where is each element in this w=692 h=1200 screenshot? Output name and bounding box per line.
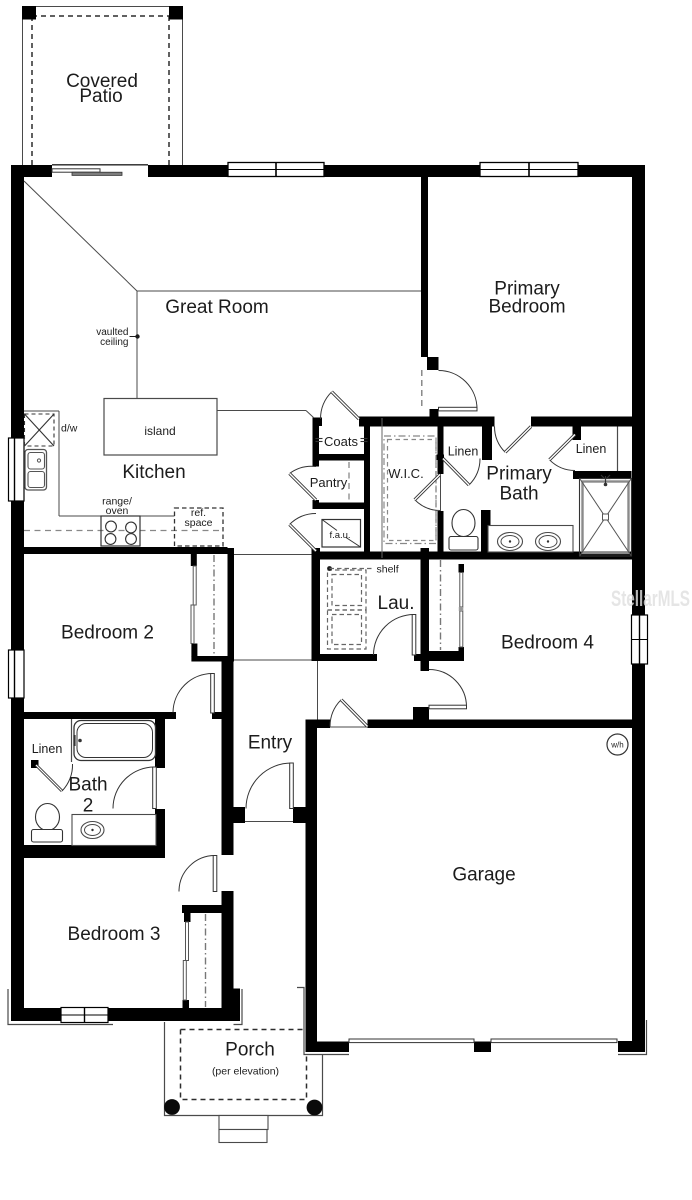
svg-text:Garage: Garage [452, 865, 515, 886]
svg-text:StellarMLS: StellarMLS [611, 586, 690, 611]
svg-text:Porch: Porch [225, 1040, 275, 1061]
svg-text:W.I.C.: W.I.C. [388, 466, 423, 481]
svg-text:Great Room: Great Room [165, 297, 268, 318]
svg-text:Bedroom 4: Bedroom 4 [501, 633, 594, 654]
svg-text:Linen: Linen [448, 445, 479, 459]
svg-text:Bedroom 3: Bedroom 3 [68, 924, 161, 945]
svg-text:(per elevation): (per elevation) [212, 1066, 279, 1078]
svg-text:Bedroom: Bedroom [488, 297, 565, 318]
svg-text:Entry: Entry [248, 733, 293, 754]
svg-text:island: island [144, 424, 175, 438]
svg-text:oven: oven [106, 505, 129, 517]
svg-text:Lau.: Lau. [378, 593, 415, 614]
svg-text:space: space [184, 517, 212, 529]
svg-text:Bedroom 2: Bedroom 2 [61, 623, 154, 644]
svg-text:Linen: Linen [576, 442, 607, 456]
svg-text:f.a.u.: f.a.u. [329, 530, 350, 541]
svg-text:Bath: Bath [68, 775, 107, 796]
svg-text:Patio: Patio [79, 86, 122, 107]
svg-text:w/h: w/h [610, 741, 623, 750]
svg-text:Coats: Coats [324, 434, 358, 449]
svg-text:ceiling: ceiling [100, 337, 128, 348]
svg-text:shelf: shelf [377, 564, 399, 576]
svg-text:Kitchen: Kitchen [122, 462, 185, 483]
svg-text:Linen: Linen [32, 742, 63, 756]
svg-text:Bath: Bath [499, 484, 538, 505]
svg-text:d/w: d/w [61, 423, 78, 435]
svg-text:2: 2 [83, 796, 94, 817]
svg-text:Pantry: Pantry [310, 475, 348, 490]
svg-text:Primary: Primary [486, 464, 552, 485]
